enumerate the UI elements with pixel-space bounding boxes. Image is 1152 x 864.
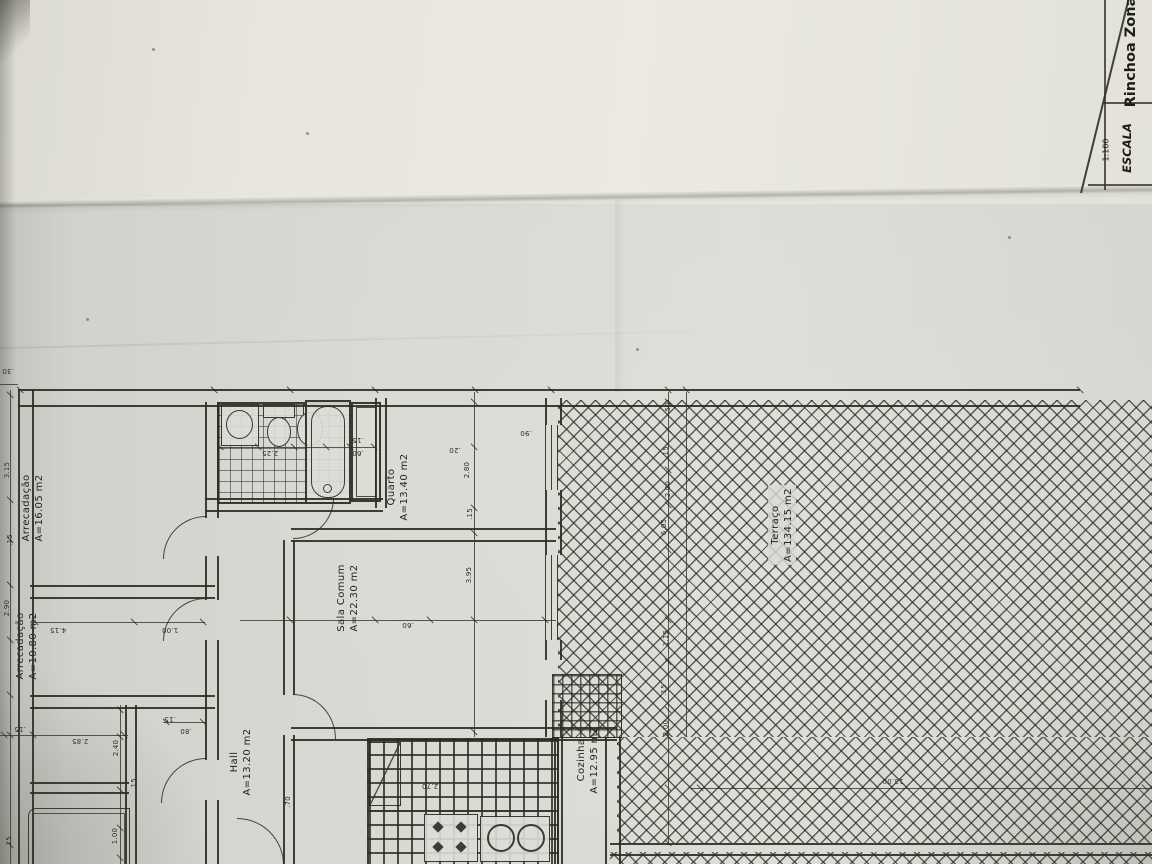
dimension-label: .15	[660, 684, 668, 696]
door-swing-arc	[293, 694, 336, 739]
window-symbol	[545, 425, 558, 490]
wall-segment	[545, 490, 562, 555]
door-swing-arc	[237, 818, 284, 864]
photo-vignette	[852, 644, 1152, 864]
dimension-label: 2.70	[422, 782, 438, 790]
dust-speck	[306, 132, 309, 135]
washbasin	[221, 404, 259, 446]
dimension-label: .60	[402, 621, 414, 629]
photo-corner-shadow	[0, 0, 30, 66]
wall-segment	[605, 737, 621, 864]
dimension-label: 3.95	[465, 567, 473, 583]
dimension-label: 2.00	[664, 481, 672, 497]
room-area: A=22.30 m2	[348, 564, 361, 631]
stove	[424, 814, 478, 862]
dimension-label: 4.15	[50, 626, 66, 634]
dimension-label: .15	[662, 446, 670, 458]
room-area: A=13.40 m2	[398, 453, 411, 520]
dimension-label: 2.25	[262, 449, 278, 457]
dimension-label: .60	[352, 449, 364, 457]
room-name: Terraço	[769, 488, 782, 562]
dimension-label: .20	[449, 446, 461, 454]
photo-of-floor-plan: Rinchoa Zona ESCALA 1:100	[0, 0, 1152, 864]
wall-segment	[291, 528, 556, 542]
wall-segment	[545, 640, 562, 660]
dimension-label: .15	[352, 436, 364, 444]
photo-corner-shadow	[0, 664, 220, 864]
dimension-line	[686, 392, 687, 737]
dust-speck	[86, 318, 89, 321]
dimension-label: .70	[284, 796, 292, 808]
kitchen-sink	[480, 816, 550, 862]
wall-segment	[205, 556, 219, 600]
wall-segment	[375, 398, 387, 508]
room-area: A=134.15 m2	[782, 488, 795, 562]
dimension-label: 2.80	[463, 462, 471, 478]
dimension-label: 6.05	[660, 519, 668, 535]
wall-segment	[554, 737, 563, 864]
wall-segment	[30, 585, 215, 599]
room-area: A=13.20 m2	[241, 728, 254, 795]
dimension-label: 2.00	[662, 720, 670, 736]
dust-speck	[636, 348, 639, 351]
dimension-label: 1.15	[662, 630, 670, 646]
dimension-label: .15	[466, 508, 474, 520]
dimension-label: 1.00	[162, 626, 178, 634]
wall-segment	[545, 700, 562, 737]
dimension-line	[474, 392, 475, 737]
door-swing-arc	[163, 516, 206, 559]
wall-segment	[291, 727, 617, 741]
counter-edge	[367, 810, 555, 812]
dust-speck	[1008, 236, 1011, 239]
wall-segment	[545, 398, 562, 425]
dimension-label: .90	[520, 429, 532, 437]
kitchen-cabinet	[369, 742, 401, 806]
dimension-line	[240, 620, 556, 621]
dimension-label: .50	[664, 402, 672, 414]
wall-segment	[205, 402, 219, 518]
room-name: Sala Comum	[335, 564, 348, 631]
room-name: Hall	[228, 728, 241, 795]
dust-speck	[152, 48, 155, 51]
window-symbol	[545, 555, 558, 640]
bathtub	[305, 400, 351, 504]
room-area: A=16.05 m2	[33, 474, 46, 541]
